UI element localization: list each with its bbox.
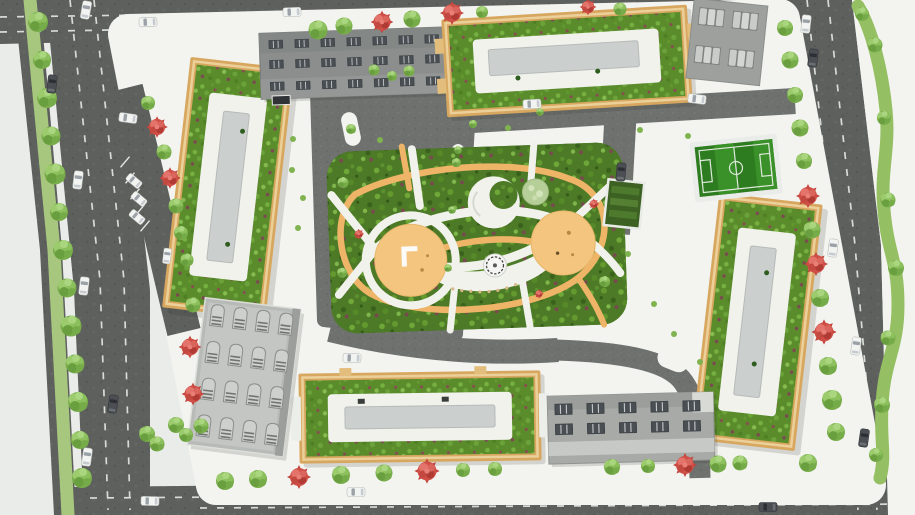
tree-green xyxy=(181,254,194,267)
site-plan-render xyxy=(0,0,915,515)
tree-green xyxy=(822,390,842,410)
car-white xyxy=(162,248,171,264)
building-north-utility xyxy=(259,27,458,106)
tree-green xyxy=(710,456,727,473)
tree-green xyxy=(150,437,165,452)
tree-green xyxy=(868,38,883,53)
tree-green xyxy=(369,65,380,76)
tree-green xyxy=(877,111,891,125)
tree-green xyxy=(641,459,655,473)
car-white xyxy=(78,277,89,296)
car-white xyxy=(139,17,157,27)
tree-green xyxy=(336,18,353,35)
tree-green xyxy=(787,87,803,103)
tree-green xyxy=(157,145,172,160)
football-pitch xyxy=(689,134,783,203)
tree-green xyxy=(874,397,890,413)
tree-green xyxy=(404,11,421,28)
car-white xyxy=(283,7,301,17)
car-white xyxy=(688,93,707,104)
car-dark xyxy=(759,503,777,512)
tree-green xyxy=(604,459,620,475)
tree-green xyxy=(448,206,456,214)
tree-green xyxy=(186,298,201,313)
tree-green xyxy=(42,127,61,146)
tree-green xyxy=(476,6,488,18)
tree-green xyxy=(404,66,415,77)
tree-green xyxy=(454,146,462,154)
tree-green xyxy=(174,226,188,240)
tree-green xyxy=(28,12,48,32)
tree-green xyxy=(376,465,393,482)
car-dark xyxy=(616,163,627,182)
car-white xyxy=(347,488,365,497)
tree-green xyxy=(216,472,234,490)
tree-green xyxy=(799,454,817,472)
carport-parking-pad xyxy=(686,0,768,86)
central-park xyxy=(326,139,628,334)
entrance-porch xyxy=(272,95,290,105)
tree-green xyxy=(141,96,155,110)
car-white xyxy=(343,353,361,363)
tree-green xyxy=(488,462,502,476)
tree-green xyxy=(819,357,837,375)
car-dark xyxy=(807,49,818,68)
tree-green xyxy=(881,331,896,346)
site-plan-svg xyxy=(0,0,915,515)
tree-green xyxy=(888,260,904,276)
tree-green xyxy=(169,199,184,214)
tree-green xyxy=(536,108,544,116)
tree-green xyxy=(469,120,477,128)
tree-green xyxy=(249,470,267,488)
tree-green xyxy=(194,419,209,434)
tree-green xyxy=(68,392,88,412)
tree-green xyxy=(444,264,452,272)
car-white xyxy=(523,99,541,109)
tree-green xyxy=(53,240,73,260)
building-northeast-residential xyxy=(433,4,701,122)
tree-green xyxy=(61,316,82,337)
tree-green xyxy=(387,71,397,81)
tree-green xyxy=(50,203,68,221)
tree-green xyxy=(792,120,809,137)
tree-canopy xyxy=(522,178,549,205)
fountain xyxy=(483,253,507,277)
tree-green xyxy=(881,193,896,208)
building-southeast-utility xyxy=(547,392,718,467)
tree-green xyxy=(309,21,328,40)
tree-green xyxy=(733,456,748,471)
tree-green xyxy=(796,153,812,169)
car-white xyxy=(827,239,838,258)
tree-green xyxy=(58,279,77,298)
tree-green xyxy=(71,431,89,449)
tree-green xyxy=(811,289,829,307)
tree-green xyxy=(804,222,821,239)
building-south-residential xyxy=(290,365,549,468)
car-white xyxy=(141,496,159,505)
tree-green xyxy=(33,51,51,69)
car-white xyxy=(801,15,812,34)
tree-green xyxy=(855,7,869,21)
tree-green xyxy=(777,20,793,36)
tree-green xyxy=(66,355,85,374)
tree-green xyxy=(456,463,470,477)
community-garden xyxy=(604,179,645,229)
tree-green xyxy=(346,124,356,134)
tree-green xyxy=(332,466,350,484)
tree-green xyxy=(179,428,193,442)
tree-green xyxy=(782,52,799,69)
roof-core xyxy=(345,405,495,429)
tree-green xyxy=(827,423,845,441)
tree-green xyxy=(614,2,627,15)
building-southwest-utility xyxy=(187,298,305,461)
tree-green xyxy=(72,468,92,488)
tree-green xyxy=(45,164,66,185)
car-dark xyxy=(46,75,57,94)
tree-green xyxy=(869,448,883,462)
car-white xyxy=(72,171,83,190)
